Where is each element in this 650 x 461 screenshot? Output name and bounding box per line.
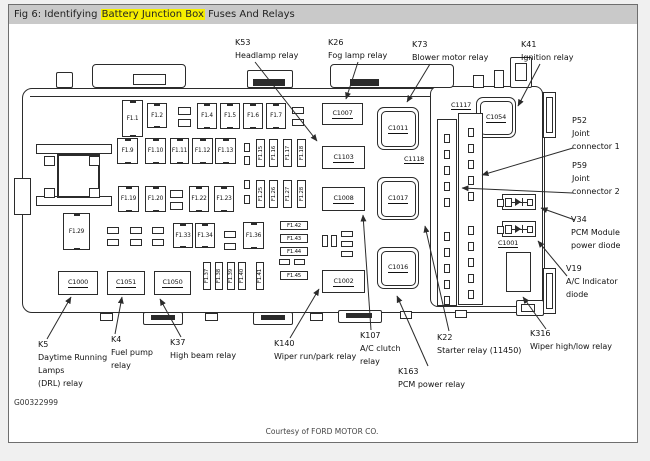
connector-label: C1008 bbox=[333, 194, 353, 204]
callout-line: High beam relay bbox=[170, 349, 236, 362]
fuse-label: F1.45 bbox=[287, 273, 301, 279]
callout-k4: K4Fuel pumprelay bbox=[111, 333, 153, 372]
spare-slot bbox=[107, 239, 119, 246]
terminal-hole bbox=[468, 128, 474, 137]
fuse-label: F1.33 bbox=[175, 233, 190, 239]
terminal-hole bbox=[444, 296, 450, 305]
terminal-hole bbox=[468, 144, 474, 153]
fuse-F1.33: F1.33 bbox=[173, 223, 193, 248]
top-tab bbox=[330, 64, 454, 88]
fuse-label: F1.40 bbox=[239, 269, 245, 283]
fuse-F1.42: F1.42 bbox=[280, 221, 308, 230]
fuse-label: F1.11 bbox=[172, 148, 187, 154]
terminal-hole bbox=[468, 290, 474, 299]
callout-line: A/C clutch bbox=[360, 342, 401, 355]
callout-k140: K140Wiper run/park relay bbox=[274, 337, 356, 363]
fuse-label: F1.10 bbox=[148, 148, 163, 154]
tab-slot-fill bbox=[350, 79, 379, 86]
callout-line: Starter relay (11450) bbox=[437, 344, 521, 357]
spare-slot bbox=[170, 190, 183, 198]
callout-line: K53 bbox=[235, 36, 298, 49]
terminal-hole bbox=[444, 232, 450, 241]
terminal-hole bbox=[468, 160, 474, 169]
callout-line: diode bbox=[566, 288, 618, 301]
spare-slot bbox=[178, 119, 191, 127]
callout-line: connector 2 bbox=[572, 185, 620, 198]
fuse-F1.38: F1.38 bbox=[215, 262, 223, 290]
diode-symbol-part bbox=[527, 226, 533, 233]
callout-line: K107 bbox=[360, 329, 401, 342]
inner-top-line bbox=[30, 96, 430, 97]
fuse-label: F1.7 bbox=[270, 113, 282, 119]
fuse-label: F1.17 bbox=[285, 146, 291, 160]
callout-line: V19 bbox=[566, 262, 618, 275]
callout-k316: K316Wiper high/low relay bbox=[530, 327, 612, 353]
callout-line: Headlamp relay bbox=[235, 49, 298, 62]
callout-k73: K73Blower motor relay bbox=[412, 38, 488, 64]
connector-label: C1051 bbox=[116, 278, 136, 288]
callout-line: Lamps bbox=[38, 364, 107, 377]
fuse-label: F1.28 bbox=[299, 187, 305, 201]
terminal-hole bbox=[444, 134, 450, 143]
fuse-label: F1.20 bbox=[148, 196, 163, 202]
fuse-F1.4: F1.4 bbox=[197, 103, 217, 129]
top-tab-slot bbox=[133, 74, 166, 85]
callout-k107: K107A/C clutchrelay bbox=[360, 329, 401, 368]
callout-line: K26 bbox=[328, 36, 387, 49]
callout-line: P59 bbox=[572, 159, 620, 172]
spare-slot bbox=[178, 107, 191, 115]
fuse-F1.44: F1.44 bbox=[280, 247, 308, 256]
relay-socket-label: C1011 bbox=[388, 124, 408, 134]
mount-slot bbox=[346, 313, 372, 318]
callout-line: Wiper high/low relay bbox=[530, 340, 612, 353]
spare-slot bbox=[130, 227, 142, 234]
terminal-hole bbox=[468, 258, 474, 267]
fuse-label: F1.41 bbox=[257, 269, 263, 283]
spare-slot bbox=[244, 180, 250, 189]
diagram-canvas: G00322999 Courtesy of FORD MOTOR CO. F1.… bbox=[0, 0, 650, 461]
fuse-F1.10: F1.10 bbox=[145, 138, 166, 164]
fuse-F1.9: F1.9 bbox=[117, 138, 138, 164]
diode-symbol-part bbox=[515, 225, 521, 233]
diode-v19 bbox=[502, 221, 536, 237]
fuse-label: F1.13 bbox=[218, 148, 233, 154]
relay-socket-C1017: C1017 bbox=[377, 177, 419, 220]
fuse-F1.17: F1.17 bbox=[283, 139, 292, 167]
fuse-label: F1.43 bbox=[287, 236, 301, 242]
bottom-tab bbox=[310, 313, 323, 321]
terminal-hole bbox=[444, 248, 450, 257]
callout-line: Fog lamp relay bbox=[328, 49, 387, 62]
callout-v19: V19A/C Indicatordiode bbox=[566, 262, 618, 301]
point-label-C1001: C1001 bbox=[498, 239, 518, 248]
fuse-label: F1.42 bbox=[287, 223, 301, 229]
fuse-F1.6: F1.6 bbox=[243, 103, 263, 129]
callout-k37: K37High beam relay bbox=[170, 336, 236, 362]
fuse-label: F1.18 bbox=[299, 146, 305, 160]
fuse-F1.16: F1.16 bbox=[269, 139, 278, 167]
connector-label: C1050 bbox=[162, 278, 182, 288]
fuse-label: F1.1 bbox=[127, 116, 139, 122]
spare-slot bbox=[341, 241, 353, 247]
callout-line: K5 bbox=[38, 338, 107, 351]
spare-slot bbox=[107, 227, 119, 234]
fuse-F1.1: F1.1 bbox=[122, 100, 143, 137]
fuse-label: F1.26 bbox=[271, 187, 277, 201]
fuse-F1.27: F1.27 bbox=[283, 180, 292, 208]
fuse-label: F1.16 bbox=[271, 146, 277, 160]
fuse-label: F1.12 bbox=[195, 148, 210, 154]
fuse-F1.34: F1.34 bbox=[195, 223, 215, 248]
connector-label: C1002 bbox=[333, 277, 353, 287]
spare-slot bbox=[294, 259, 305, 265]
fuse-label: F1.15 bbox=[258, 146, 264, 160]
terminal-hole bbox=[444, 198, 450, 207]
callout-line: K316 bbox=[530, 327, 612, 340]
diode-symbol-part bbox=[522, 198, 524, 206]
fuse-F1.39: F1.39 bbox=[227, 262, 235, 290]
bottom-tab bbox=[100, 313, 113, 321]
fuse-F1.20: F1.20 bbox=[145, 186, 166, 212]
mount-slot bbox=[151, 315, 175, 320]
fuse-label: F1.4 bbox=[201, 113, 213, 119]
spare-slot bbox=[292, 119, 304, 126]
relay-socket-C1011: C1011 bbox=[377, 107, 419, 150]
relay-socket-C1016: C1016 bbox=[377, 247, 419, 289]
fuse-label: F1.23 bbox=[216, 196, 231, 202]
connector-C1007: C1007 bbox=[322, 103, 363, 125]
callout-line: K163 bbox=[398, 365, 465, 378]
fuse-F1.2: F1.2 bbox=[147, 103, 167, 128]
spare-slot bbox=[331, 235, 337, 247]
spare-slot bbox=[170, 202, 183, 210]
fuse-label: F1.44 bbox=[287, 249, 301, 255]
terminal-hole bbox=[444, 182, 450, 191]
fuse-F1.28: F1.28 bbox=[297, 180, 306, 208]
fuse-label: F1.29 bbox=[69, 229, 84, 235]
callout-p59: P59Jointconnector 2 bbox=[572, 159, 620, 198]
callout-line: Fuel pump bbox=[111, 346, 153, 359]
callout-line: Joint bbox=[572, 127, 620, 140]
callout-line: K140 bbox=[274, 337, 356, 350]
callout-line: A/C Indicator bbox=[566, 275, 618, 288]
fuse-F1.13: F1.13 bbox=[215, 138, 236, 164]
spare-slot bbox=[152, 239, 164, 246]
connector-C1050: C1050 bbox=[154, 271, 191, 295]
fuse-label: F1.36 bbox=[246, 233, 261, 239]
diode-symbol-part bbox=[515, 198, 521, 206]
fuse-F1.43: F1.43 bbox=[280, 234, 308, 243]
fuse-F1.36: F1.36 bbox=[243, 222, 264, 249]
diode-symbol-part bbox=[497, 226, 504, 234]
bottom-tab bbox=[455, 310, 467, 318]
diode-symbol-part bbox=[527, 199, 533, 206]
fuse-label: F1.38 bbox=[216, 269, 222, 283]
callout-line: V34 bbox=[571, 213, 620, 226]
diode-v34 bbox=[502, 194, 536, 210]
callout-line: relay bbox=[360, 355, 401, 368]
spare-slot bbox=[322, 235, 328, 247]
spare-slot bbox=[292, 107, 304, 114]
joint-connector-left bbox=[437, 119, 457, 306]
top-tab bbox=[494, 70, 504, 88]
left-socket-top-bar bbox=[36, 144, 112, 154]
callout-k41: K41Ignition relay bbox=[521, 38, 574, 64]
fuse-F1.11: F1.11 bbox=[170, 138, 189, 164]
terminal-hole bbox=[444, 280, 450, 289]
terminal-hole bbox=[468, 192, 474, 201]
spare-slot bbox=[244, 156, 250, 165]
terminal-hole bbox=[468, 274, 474, 283]
fuse-label: F1.39 bbox=[228, 269, 234, 283]
bottom-tab bbox=[400, 311, 412, 319]
callout-line: K22 bbox=[437, 331, 521, 344]
spare-slot bbox=[341, 231, 353, 237]
callout-k163: K163PCM power relay bbox=[398, 365, 465, 391]
bottom-tab bbox=[205, 313, 218, 321]
fuse-label: F1.37 bbox=[204, 269, 210, 283]
joint-connector-right bbox=[458, 113, 483, 305]
connector-C1008: C1008 bbox=[322, 187, 365, 211]
relay-socket-label: C1017 bbox=[388, 194, 408, 204]
callout-line: Blower motor relay bbox=[412, 51, 488, 64]
left-socket-clip bbox=[44, 156, 55, 166]
left-edge-tab bbox=[14, 178, 31, 215]
top-tab bbox=[473, 75, 484, 88]
callout-line: Wiper run/park relay bbox=[274, 350, 356, 363]
fuse-F1.45: F1.45 bbox=[280, 271, 308, 280]
fuse-F1.12: F1.12 bbox=[192, 138, 213, 164]
terminal-hole bbox=[468, 242, 474, 251]
callout-line: (DRL) relay bbox=[38, 377, 107, 390]
callout-k26: K26Fog lamp relay bbox=[328, 36, 387, 62]
right-bracket-slot bbox=[546, 97, 553, 133]
right-bracket-slot bbox=[546, 273, 553, 309]
callout-line: PCM power relay bbox=[398, 378, 465, 391]
connector-label: C1103 bbox=[333, 153, 353, 163]
callout-line: Daytime Running bbox=[38, 351, 107, 364]
callout-line: K41 bbox=[521, 38, 574, 51]
callout-line: K73 bbox=[412, 38, 488, 51]
fuse-F1.25: F1.25 bbox=[256, 180, 265, 208]
fuse-label: F1.9 bbox=[122, 148, 134, 154]
point-label-C1117: C1117 bbox=[451, 101, 471, 110]
terminal-hole bbox=[444, 166, 450, 175]
fuse-label: F1.22 bbox=[191, 196, 206, 202]
fuse-F1.5: F1.5 bbox=[220, 103, 240, 129]
connector-label: C1007 bbox=[332, 109, 352, 119]
callout-k22: K22Starter relay (11450) bbox=[437, 331, 521, 357]
figure-code: G00322999 bbox=[14, 398, 58, 407]
spare-slot bbox=[224, 243, 236, 250]
connector-C1103: C1103 bbox=[322, 146, 365, 169]
fuse-F1.23: F1.23 bbox=[214, 186, 234, 212]
fuse-F1.15: F1.15 bbox=[256, 139, 265, 167]
callout-line: Ignition relay bbox=[521, 51, 574, 64]
fuse-F1.19: F1.19 bbox=[118, 186, 139, 212]
top-tab bbox=[56, 72, 73, 88]
fuse-F1.7: F1.7 bbox=[266, 103, 286, 129]
terminal-hole bbox=[444, 150, 450, 159]
tab-slot-fill bbox=[253, 79, 285, 86]
diode-symbol-part bbox=[505, 225, 512, 234]
callout-line: K37 bbox=[170, 336, 236, 349]
callout-p52: P52Jointconnector 1 bbox=[572, 114, 620, 153]
point-label-C1118: C1118 bbox=[404, 155, 424, 164]
callout-line: P52 bbox=[572, 114, 620, 127]
callout-line: K4 bbox=[111, 333, 153, 346]
callout-line: connector 1 bbox=[572, 140, 620, 153]
fuse-F1.18: F1.18 bbox=[297, 139, 306, 167]
terminal-hole bbox=[444, 264, 450, 273]
connector-C1000: C1000 bbox=[58, 271, 98, 295]
relay-socket-label: C1016 bbox=[388, 263, 408, 273]
spare-slot bbox=[152, 227, 164, 234]
left-socket-clip bbox=[44, 188, 55, 198]
fuse-F1.29: F1.29 bbox=[63, 213, 90, 250]
callout-line: power diode bbox=[571, 239, 620, 252]
fuse-F1.22: F1.22 bbox=[189, 186, 209, 212]
callout-line: PCM Module bbox=[571, 226, 620, 239]
callout-k53: K53Headlamp relay bbox=[235, 36, 298, 62]
terminal-hole bbox=[468, 226, 474, 235]
courtesy-note: Courtesy of FORD MOTOR CO. bbox=[8, 427, 636, 436]
callout-line: Joint bbox=[572, 172, 620, 185]
fuse-label: F1.19 bbox=[121, 196, 136, 202]
fuse-label: F1.25 bbox=[258, 187, 264, 201]
spare-slot bbox=[244, 195, 250, 204]
connector-C1002: C1002 bbox=[322, 270, 365, 293]
fuse-F1.37: F1.37 bbox=[203, 262, 211, 290]
top-tab-slot bbox=[515, 63, 527, 81]
callout-k5: K5Daytime RunningLamps(DRL) relay bbox=[38, 338, 107, 390]
fuse-label: F1.6 bbox=[247, 113, 259, 119]
callout-v34: V34PCM Modulepower diode bbox=[571, 213, 620, 252]
left-socket-clip bbox=[89, 188, 100, 198]
spare-slot bbox=[341, 251, 353, 257]
spare-slot bbox=[279, 259, 290, 265]
diode-symbol-part bbox=[522, 225, 524, 233]
relay-socket-label: C1054 bbox=[486, 113, 506, 123]
fuse-F1.41: F1.41 bbox=[256, 262, 264, 290]
spare-slot bbox=[130, 239, 142, 246]
terminal-hole bbox=[468, 176, 474, 185]
left-socket-clip bbox=[89, 156, 100, 166]
fuse-label: F1.34 bbox=[197, 233, 212, 239]
fuse-label: F1.2 bbox=[151, 113, 163, 119]
diode-symbol-part bbox=[497, 199, 504, 207]
connector-C1051: C1051 bbox=[107, 271, 145, 295]
bottom-corner-slot bbox=[521, 304, 535, 312]
callout-line: relay bbox=[111, 359, 153, 372]
connector-label: C1000 bbox=[68, 278, 88, 288]
mount-slot bbox=[261, 315, 285, 320]
spare-slot bbox=[244, 143, 250, 152]
fuse-F1.26: F1.26 bbox=[269, 180, 278, 208]
fuse-label: F1.5 bbox=[224, 113, 236, 119]
fuse-F1.40: F1.40 bbox=[238, 262, 246, 290]
diode-symbol-part bbox=[505, 198, 512, 207]
k316-relay-box bbox=[506, 252, 531, 292]
fuse-label: F1.27 bbox=[285, 187, 291, 201]
spare-slot bbox=[224, 231, 236, 238]
